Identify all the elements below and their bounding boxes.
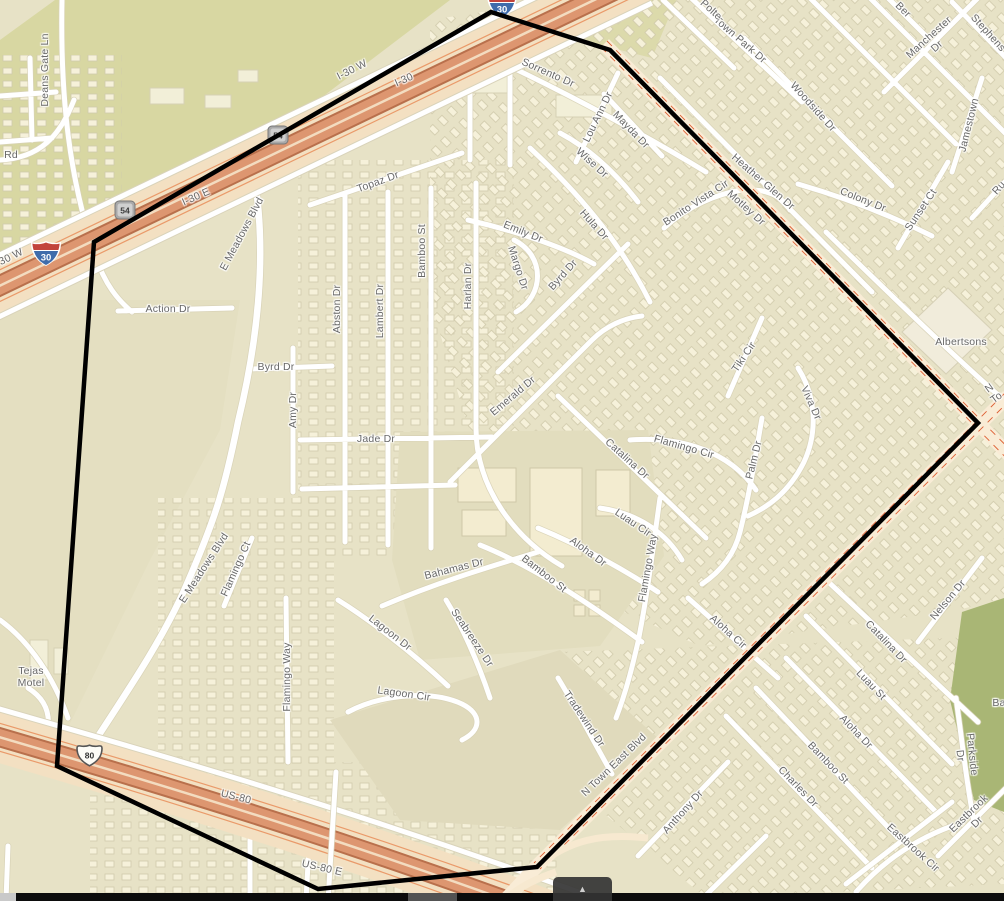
scrollbar-thumb[interactable] <box>408 893 457 901</box>
expand-panel-button[interactable]: ▲ <box>553 877 612 901</box>
map-viewport[interactable]: 30 30 54 54 80 Deans Gate LnRdI-30 WI-30… <box>0 0 1004 901</box>
basemap <box>0 0 1004 901</box>
bottom-window-edge <box>16 893 1004 901</box>
bottom-corner <box>0 893 16 901</box>
up-arrow-icon: ▲ <box>578 885 587 894</box>
